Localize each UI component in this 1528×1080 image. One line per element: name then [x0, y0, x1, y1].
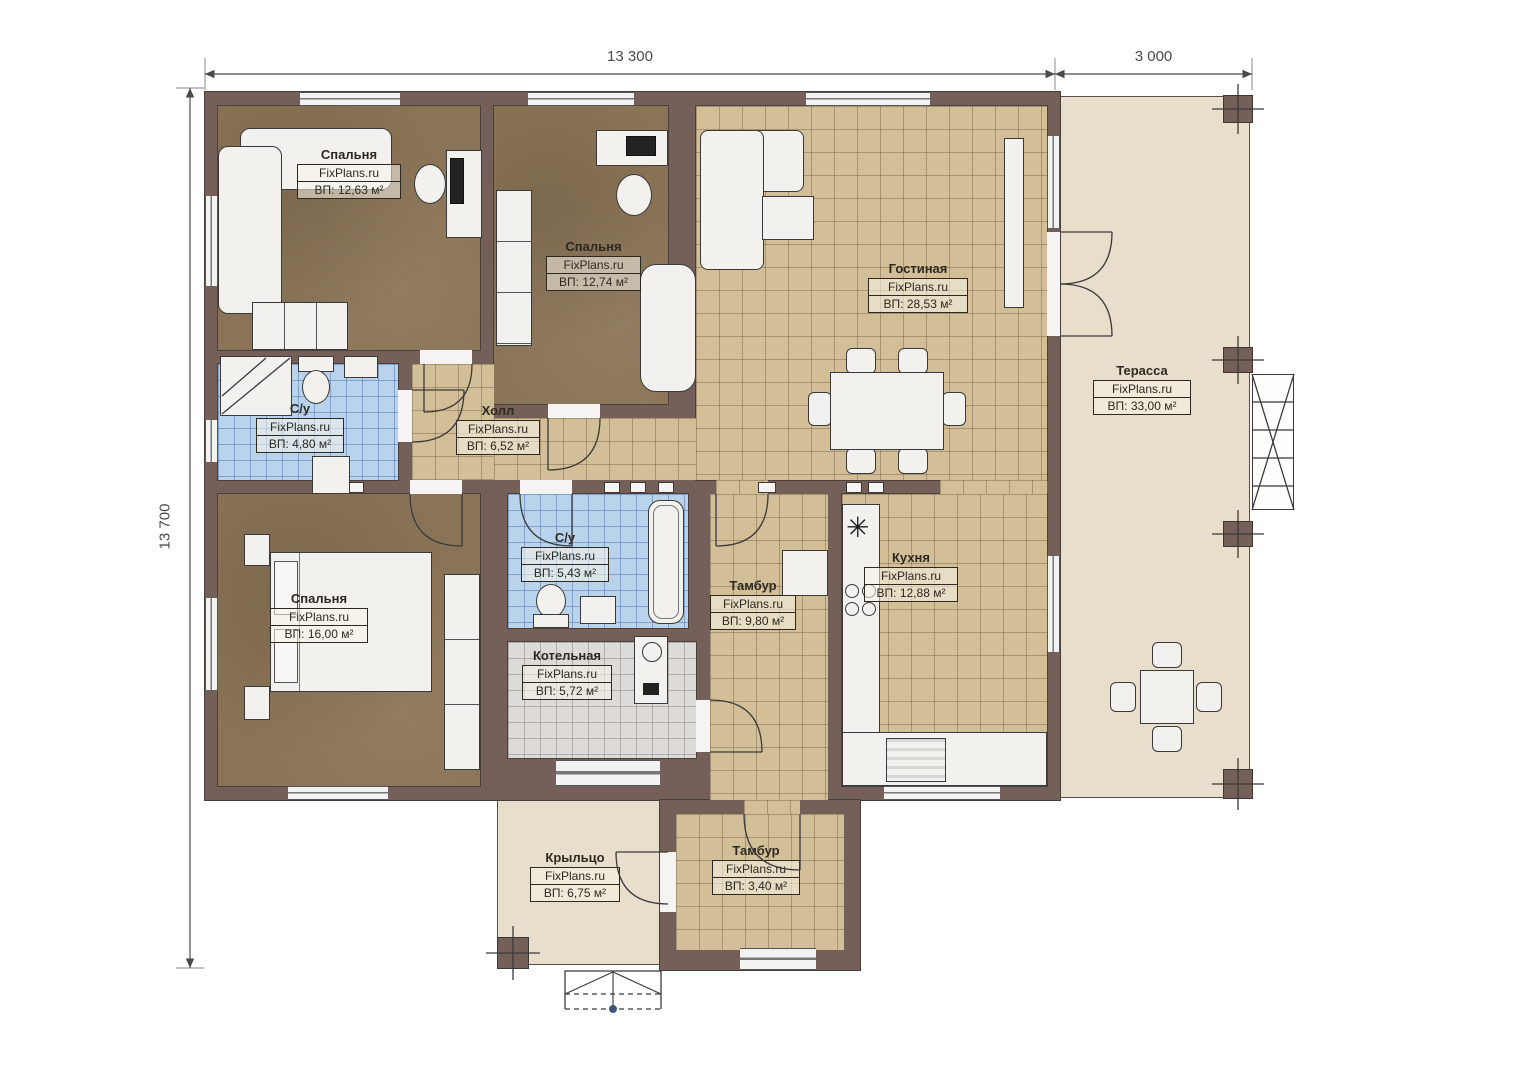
dining-chair: [898, 448, 928, 474]
dining-chair: [942, 392, 966, 426]
terrace-table: [1140, 670, 1194, 724]
sofa: [218, 146, 282, 314]
room-name: Спальня: [270, 592, 368, 606]
wardrobe: [496, 190, 532, 346]
window: [205, 598, 218, 690]
terrace-chair: [1196, 682, 1222, 712]
door-opening-vestibule-back: [744, 800, 800, 814]
bathtub-inner: [653, 505, 679, 619]
room-area: ВП: 5,72 м²: [523, 683, 611, 699]
room-brand: FixPlans.ru: [713, 861, 799, 878]
terrace-door-opening: [1047, 232, 1060, 336]
window: [884, 786, 1000, 800]
window: [288, 786, 388, 800]
coffee-table: [762, 196, 814, 240]
room-info-box: FixPlans.ru ВП: 5,43 м²: [521, 547, 609, 582]
room-name: С/у: [521, 531, 609, 545]
room-label-living-room: Гостиная FixPlans.ru ВП: 28,53 м²: [868, 262, 968, 313]
toilet: [536, 584, 566, 618]
room-name: Спальня: [546, 240, 641, 254]
dimension-label-top-main: 13 300: [205, 48, 1055, 65]
dining-table: [830, 372, 944, 450]
room-name: С/у: [256, 402, 344, 416]
pillar: [1224, 96, 1252, 122]
room-label-vestibule-main: Тамбур FixPlans.ru ВП: 9,80 м²: [710, 579, 796, 630]
terrace-chair: [1110, 682, 1136, 712]
door-opening: [696, 700, 710, 752]
room-name: Тамбур: [710, 579, 796, 593]
floor-vestibule-main: [710, 494, 828, 814]
room-area: ВП: 16,00 м²: [271, 626, 367, 642]
room-area: ВП: 4,80 м²: [257, 436, 343, 452]
room-label-kitchen: Кухня FixPlans.ru ВП: 12,88 м²: [864, 551, 958, 602]
wall-niche: [758, 482, 776, 493]
room-label-porch: Крыльцо FixPlans.ru ВП: 6,75 м²: [530, 851, 620, 902]
room-area: ВП: 12,88 м²: [865, 585, 957, 601]
room-brand: FixPlans.ru: [271, 609, 367, 626]
room-info-box: FixPlans.ru ВП: 9,80 м²: [710, 595, 796, 630]
wall-niche: [604, 482, 620, 493]
room-info-box: FixPlans.ru ВП: 4,80 м²: [256, 418, 344, 453]
room-info-box: FixPlans.ru ВП: 12,63 м²: [297, 164, 401, 199]
wall-niche: [630, 482, 646, 493]
room-label-bedroom-top-left: Спальня FixPlans.ru ВП: 12,63 м²: [297, 148, 401, 199]
room-label-bathroom-bottom: С/у FixPlans.ru ВП: 5,43 м²: [521, 531, 609, 582]
dimension-label-top-terrace: 3 000: [1055, 48, 1252, 65]
passage-living-kitchen: [940, 480, 1047, 494]
room-label-terrace: Терасса FixPlans.ru ВП: 33,00 м²: [1093, 364, 1191, 415]
door-opening: [548, 404, 600, 418]
wall-niche: [868, 482, 884, 493]
room-brand: FixPlans.ru: [711, 596, 795, 613]
room-name: Спальня: [297, 148, 401, 162]
room-name: Крыльцо: [530, 851, 620, 865]
stove-burner: [845, 584, 859, 598]
room-name: Тамбур: [712, 844, 800, 858]
room-area: ВП: 12,63 м²: [298, 182, 400, 198]
wall-niche: [658, 482, 674, 493]
room-brand: FixPlans.ru: [547, 257, 640, 274]
bathtub: [648, 500, 684, 624]
dining-chair: [846, 448, 876, 474]
wall-vestibule-divider-right: [800, 800, 828, 814]
toilet: [533, 614, 569, 628]
toilet: [302, 370, 330, 404]
room-name: Терасса: [1093, 364, 1191, 378]
room-info-box: FixPlans.ru ВП: 12,88 м²: [864, 567, 958, 602]
porch-steps: [565, 971, 661, 1013]
door-opening: [520, 480, 572, 494]
door-opening: [420, 350, 472, 364]
room-label-boiler-room: Котельная FixPlans.ru ВП: 5,72 м²: [522, 649, 612, 700]
window: [205, 196, 218, 286]
stairs: [1252, 374, 1294, 510]
pillar: [1224, 770, 1252, 798]
room-area: ВП: 33,00 м²: [1094, 398, 1190, 414]
room-label-bathroom-top: С/у FixPlans.ru ВП: 4,80 м²: [256, 402, 344, 453]
room-area: ВП: 6,52 м²: [457, 438, 539, 454]
terrace-chair: [1152, 642, 1182, 668]
nightstand: [244, 534, 270, 566]
wall-vestibule-divider-left: [710, 800, 744, 814]
room-name: Холл: [456, 404, 540, 418]
sink: [580, 596, 616, 624]
boiler-unit: [634, 636, 668, 704]
dimension-label-left: 13 700: [157, 467, 174, 587]
dishwasher: [886, 738, 946, 782]
desk-chair: [616, 174, 652, 216]
terrace-chair: [1152, 726, 1182, 752]
tv: [626, 136, 656, 156]
room-info-box: FixPlans.ru ВП: 6,75 м²: [530, 867, 620, 902]
dining-chair: [808, 392, 832, 426]
room-area: ВП: 9,80 м²: [711, 613, 795, 629]
window: [806, 92, 930, 106]
room-info-box: FixPlans.ru ВП: 16,00 м²: [270, 608, 368, 643]
room-label-bedroom-bottom-left: Спальня FixPlans.ru ВП: 16,00 м²: [270, 592, 368, 643]
boiler-dial: [642, 642, 662, 662]
room-brand: FixPlans.ru: [522, 548, 608, 565]
pillar: [498, 938, 528, 968]
wardrobe: [444, 574, 480, 770]
nightstand: [244, 686, 270, 720]
room-label-hall: Холл FixPlans.ru ВП: 6,52 м²: [456, 404, 540, 455]
back-door-opening: [740, 948, 816, 970]
door-opening: [410, 480, 462, 494]
porch-door-opening: [660, 852, 676, 912]
window: [1047, 136, 1060, 228]
pillar: [1224, 348, 1252, 372]
window: [205, 420, 218, 462]
tv-stand: [1004, 138, 1024, 308]
stove-burner: [862, 602, 876, 616]
sink: [344, 356, 378, 378]
window: [1047, 556, 1060, 652]
room-info-box: FixPlans.ru ВП: 33,00 м²: [1093, 380, 1191, 415]
stove-burner: [845, 602, 859, 616]
room-brand: FixPlans.ru: [523, 666, 611, 683]
dining-chair: [846, 348, 876, 374]
room-brand: FixPlans.ru: [869, 279, 967, 296]
room-brand: FixPlans.ru: [298, 165, 400, 182]
room-area: ВП: 5,43 м²: [522, 565, 608, 581]
room-brand: FixPlans.ru: [865, 568, 957, 585]
room-brand: FixPlans.ru: [257, 419, 343, 436]
dresser: [252, 302, 348, 350]
tv: [450, 158, 464, 204]
room-area: ВП: 12,74 м²: [547, 274, 640, 290]
fridge-snowflake-icon: ✳: [846, 514, 869, 542]
room-brand: FixPlans.ru: [1094, 381, 1190, 398]
washing-machine: [312, 456, 350, 494]
room-brand: FixPlans.ru: [531, 868, 619, 885]
room-area: ВП: 3,40 м²: [713, 878, 799, 894]
room-info-box: FixPlans.ru ВП: 28,53 м²: [868, 278, 968, 313]
boiler-hatch: [643, 683, 659, 695]
room-name: Котельная: [522, 649, 612, 663]
pillar: [1224, 522, 1252, 546]
corner-sofa: [700, 130, 764, 270]
room-label-vestibule-back: Тамбур FixPlans.ru ВП: 3,40 м²: [712, 844, 800, 895]
floor-plan: 13 300 3 000 13 700: [0, 0, 1528, 1080]
dining-chair: [898, 348, 928, 374]
room-area: ВП: 6,75 м²: [531, 885, 619, 901]
door-opening: [398, 390, 412, 442]
room-info-box: FixPlans.ru ВП: 3,40 м²: [712, 860, 800, 895]
room-brand: FixPlans.ru: [457, 421, 539, 438]
room-name: Гостиная: [868, 262, 968, 276]
wall-niche: [846, 482, 862, 493]
room-name: Кухня: [864, 551, 958, 565]
window: [300, 92, 400, 106]
window: [556, 760, 660, 786]
room-area: ВП: 28,53 м²: [869, 296, 967, 312]
desk-chair: [414, 164, 446, 204]
window: [528, 92, 634, 106]
room-info-box: FixPlans.ru ВП: 5,72 м²: [522, 665, 612, 700]
room-info-box: FixPlans.ru ВП: 6,52 м²: [456, 420, 540, 455]
room-info-box: FixPlans.ru ВП: 12,74 м²: [546, 256, 641, 291]
room-label-bedroom-top-middle: Спальня FixPlans.ru ВП: 12,74 м²: [546, 240, 641, 291]
armchair: [640, 264, 696, 392]
